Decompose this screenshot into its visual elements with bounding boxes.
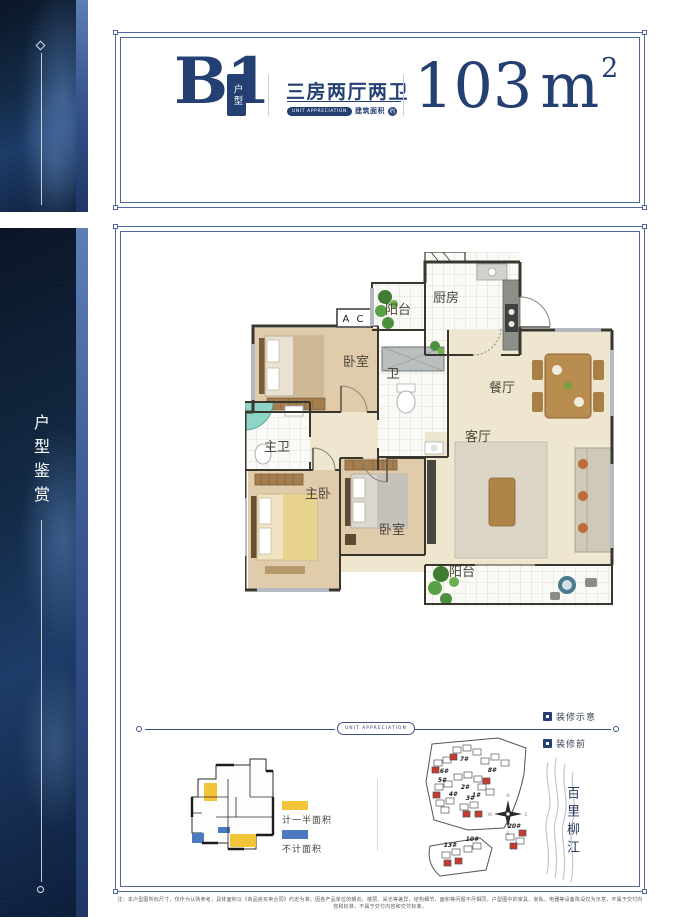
building-label: 5#	[438, 777, 447, 784]
divider-line-left	[145, 729, 335, 730]
photo-texture	[0, 228, 88, 917]
header-divider	[268, 74, 269, 116]
building-label: 10#	[466, 836, 479, 843]
frame-corner	[113, 205, 118, 210]
frame-corner	[642, 205, 647, 210]
room-label-balcony-bottom: 阳台	[449, 565, 475, 580]
area-prefix: 建筑面积	[355, 106, 385, 116]
tagline-pill: UNIT APPRECIATION	[287, 107, 352, 116]
annotation-decor-demo: 装修示意	[543, 710, 596, 723]
vertical-rule	[41, 520, 42, 882]
brochure-page: 户型鉴赏 B1 户型 三房两厅两卫 UNIT APPRECIATION 建筑面积…	[0, 0, 677, 920]
frame-corner	[642, 30, 647, 35]
legend-swatch-excluded	[282, 830, 308, 839]
sidebar-vertical-title: 户型鉴赏	[28, 414, 52, 510]
divider-ring-left	[136, 726, 142, 732]
unit-type-badge: 户型	[227, 74, 246, 116]
svg-text:S: S	[507, 831, 510, 837]
svg-text:W: W	[488, 812, 493, 818]
ring-ornament	[37, 886, 44, 893]
half-area-zone	[230, 834, 256, 847]
legend-label-half-area: 计一半面积	[282, 813, 332, 826]
building-label: 2#	[461, 784, 470, 791]
sidebar-accent-band	[76, 228, 88, 917]
building-label: 7#	[460, 756, 469, 763]
excluded-area-zone	[192, 833, 204, 843]
building-label: 6#	[440, 768, 449, 775]
building-label: 13#	[444, 842, 457, 849]
svg-text:N: N	[506, 793, 509, 799]
room-label-master-bath: 主卫	[264, 440, 290, 455]
divider-ring-right	[613, 726, 619, 732]
decor-demo-label: 装修示意	[556, 710, 596, 723]
frame-corner	[642, 224, 647, 229]
area-figure: 103m2	[414, 55, 618, 117]
frame-corner	[113, 224, 118, 229]
room-label-balcony-top: 阳台	[385, 303, 411, 318]
sidebar-accent-band	[76, 0, 88, 212]
unit-code: B1	[174, 50, 269, 114]
approx-circle: 约	[388, 107, 397, 116]
frame-corner	[642, 889, 647, 894]
area-unit: m	[540, 49, 599, 122]
room-label-bathroom: 卫	[386, 367, 399, 382]
legend-swatch-half-area	[282, 801, 308, 810]
building-label: 4#	[449, 791, 458, 798]
disclaimer: 注：本户型图所标尺寸，仅作为认购参考，具体面积以《商品房买卖合同》约定为准。因各…	[115, 896, 645, 910]
area-exponent: 2	[601, 53, 618, 84]
floor-plan: 阳台 厨房 A C 卧室 卫 餐厅 客厅 主卫 主卧 卧室 阳台	[245, 252, 615, 612]
area-value: 103	[414, 49, 532, 122]
room-label-bedroom2: 卧室	[343, 354, 369, 370]
header-divider	[403, 74, 404, 116]
photo-texture	[0, 0, 88, 212]
frame-corner	[113, 889, 118, 894]
building-label: 8#	[488, 767, 497, 774]
frame-corner	[113, 30, 118, 35]
room-label-bedroom3: 卧室	[379, 522, 405, 538]
building-label: 20#	[508, 823, 521, 830]
decor-demo-icon	[543, 712, 552, 721]
layout-type: 三房两厅两卫	[286, 77, 409, 104]
room-label-master-bedroom: 主卧	[305, 487, 331, 502]
room-label-ac: A C	[342, 314, 365, 325]
sidebar-photo-bottom: 户型鉴赏	[0, 228, 88, 917]
key-plan	[188, 757, 280, 859]
half-area-zone	[204, 783, 217, 801]
room-label-living: 客厅	[465, 429, 491, 445]
sidebar-photo-top	[0, 0, 88, 212]
room-label-dining: 餐厅	[489, 380, 515, 396]
header-tagline-row: UNIT APPRECIATION 建筑面积 约	[287, 106, 397, 116]
room-label-kitchen: 厨房	[433, 290, 459, 306]
river-name: 百里柳江	[562, 786, 581, 858]
divider-tagline: UNIT APPRECIATION	[337, 722, 415, 735]
layout-underline	[287, 101, 401, 102]
svg-text:E: E	[525, 812, 528, 818]
site-parcel-south	[429, 838, 492, 876]
legend-label-excluded: 不计面积	[282, 842, 322, 855]
divider-line-right	[414, 729, 611, 730]
legend-site-divider	[377, 779, 378, 851]
vertical-rule	[41, 53, 42, 205]
building-label: 3#	[466, 795, 475, 802]
